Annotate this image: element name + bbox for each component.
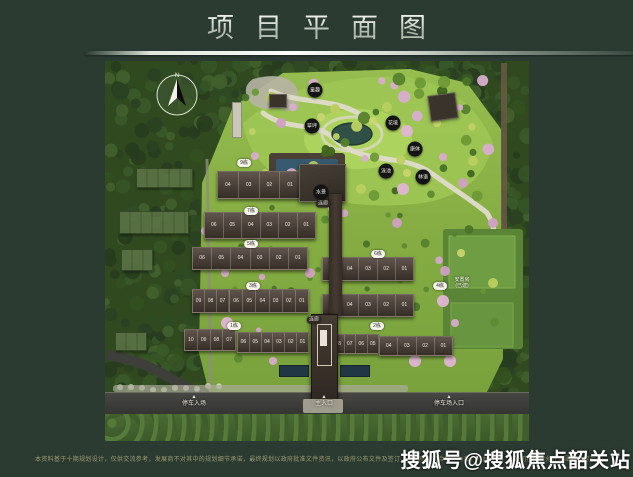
existing-building [115,332,147,351]
unit-number: 02 [285,333,297,352]
amenity-marker: 花境 [386,116,401,131]
gate-water-feature [340,365,370,377]
building-row-5: 060504030201 [192,247,308,270]
unit-number: 03 [239,172,260,198]
park-structure [269,94,287,108]
unit-number: 05 [243,290,256,312]
unit-number: 05 [250,333,262,352]
unit-number: 08 [211,330,224,350]
unit-number: 06 [238,333,250,352]
unit-number: 01 [435,337,452,355]
unit-number: 08 [205,290,217,312]
unit-number: 05 [212,248,231,269]
unit-number: 02 [279,213,298,238]
resettlement-housing-line2: (已建) [447,283,477,289]
gate-door [320,330,327,346]
park-structure [427,92,458,122]
unit-number: 10 [185,330,198,350]
unit-number: 02 [378,295,396,316]
unit-number: 09 [198,330,211,350]
unit-number: 01 [298,213,316,238]
building-badge-7: 7栋 [244,207,258,215]
unit-number: 02 [260,172,281,198]
unit-number: 04 [231,248,250,269]
building-row-2-west: 08070605 [332,334,379,354]
entrance-main: ▲ 主入口 [315,395,333,408]
building-badge-1: 1栋 [227,322,241,330]
watermark: 搜狐号@搜狐焦点韶关站 [400,444,631,473]
amenity-marker: 泳池 [379,164,394,179]
building-badge-9: 9栋 [237,159,251,167]
unit-number: 02 [378,258,396,280]
unit-number: 01 [280,172,300,198]
amenity-marker: 童趣 [308,83,323,98]
building-row-2-east: 04030201 [379,336,453,356]
header: 项目平面图 [0,0,633,51]
existing-building [121,249,153,271]
building-row-3-west: 090807 [192,289,229,313]
building-badge-2: 2栋 [370,322,384,330]
building-badge-6: 6栋 [371,250,385,258]
unit-number: 04 [262,333,274,352]
unit-number: 07 [223,330,235,350]
corridor-label: 连廊 [307,317,321,324]
unit-number: 09 [193,290,205,312]
main-gate-tower [311,314,338,406]
amenity-marker: 康体 [408,142,423,157]
building-badge-3: 3栋 [246,282,260,290]
unit-number: 03 [251,248,270,269]
unit-number: 03 [273,333,285,352]
unit-number: 01 [296,290,308,312]
footer: 本资料基于十期规划设计，仅供交流参考，发展商不对其中的规划细节承诺，最终规划以政… [0,441,633,477]
unit-number: 04 [218,172,239,198]
sidewalk [113,385,408,392]
gate-water-feature [279,365,309,377]
building-row-3-east: 060504030201 [229,289,309,313]
unit-number: 03 [359,295,377,316]
unit-number: 01 [396,295,413,316]
page-title: 项目平面图 [186,6,447,45]
unit-number: 07 [345,335,357,353]
existing-building [136,168,193,188]
page: 项目平面图 [0,0,633,477]
amenity-marker: 水景 [314,185,329,200]
unit-number: 04 [341,295,359,316]
corridor-label: 连廊 [316,201,330,208]
unit-number: 06 [356,335,368,353]
amenity-marker: 草坪 [305,119,320,134]
park-pavilion-building [232,102,242,138]
unit-number: 01 [297,333,308,352]
entrance-garage: ▲ 停车场入口 [434,395,464,408]
unit-number: 06 [193,248,212,269]
unit-number: 04 [242,213,261,238]
unit-number: 01 [396,258,413,280]
building-row-7: 060504030201 [204,212,316,239]
unit-number: 02 [270,248,289,269]
unit-number: 06 [230,290,243,312]
building-badge-4: 4栋 [433,282,447,290]
building-badge-5: 5栋 [244,240,258,248]
unit-number: 04 [256,290,269,312]
header-divider [85,51,633,55]
building-row-1-west: 10090807 [184,329,236,351]
unit-number: 03 [398,337,416,355]
unit-number: 02 [283,290,296,312]
compass-north-label: N [175,73,179,79]
unit-number: 03 [359,258,377,280]
resettlement-housing-label: 安置房 (已建) [447,277,477,289]
unit-number: 05 [368,335,379,353]
building-row-1-east: 060504030201 [237,332,309,353]
central-corridor [329,194,342,316]
existing-building [119,211,189,234]
unit-number: 03 [270,290,283,312]
unit-number: 02 [417,337,435,355]
unit-number: 01 [289,248,307,269]
amenity-marker: 林语 [416,170,431,185]
building-row-9: 04030201 [217,171,301,199]
unit-number: 06 [205,213,224,238]
unit-number: 07 [217,290,228,312]
entrance-parking-in: ▲ 停车入场 [182,395,206,408]
unit-number: 03 [261,213,280,238]
unit-number: 05 [224,213,243,238]
site-plan: N 04030201 060504030201 060504030201 050… [105,61,529,441]
unit-number: 04 [341,258,359,280]
perimeter-hedge [105,414,529,441]
unit-number: 04 [380,337,398,355]
